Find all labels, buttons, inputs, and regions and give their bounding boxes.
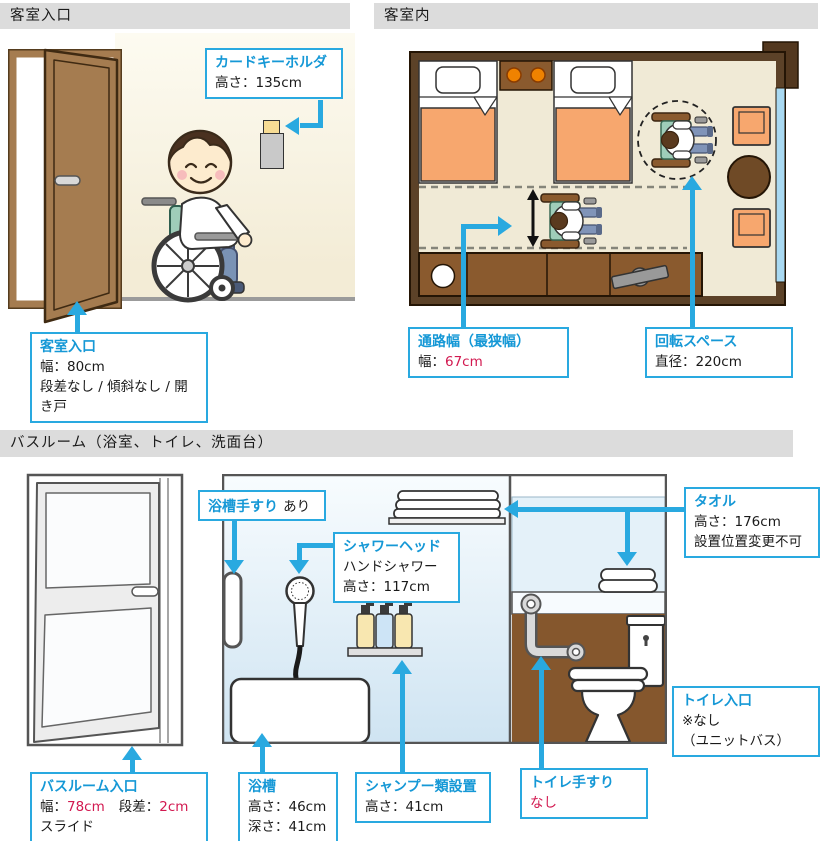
wheelchair-person-illustration <box>140 118 270 310</box>
card-key-height: 高さ：135cm <box>215 74 333 94</box>
bathroom-entrance-title: バスルーム入口 <box>40 777 198 798</box>
passage-value-line: 幅：67cm <box>418 353 559 373</box>
callout-toilet-entrance: トイレ入口 ※なし （ユニットバス） <box>672 686 820 757</box>
room-entrance-detail: 段差なし / 傾斜なし / 開き戸 <box>40 378 198 418</box>
toilet-entrance-note: （ユニットバス） <box>682 732 810 752</box>
room-entrance-width: 幅：80cm <box>40 358 198 378</box>
room-entrance-title: 客室入口 <box>40 337 198 358</box>
callout-bathroom-entrance: バスルーム入口 幅：78cm段差：2cm スライド <box>30 772 208 841</box>
shower-type: ハンドシャワー <box>343 558 450 578</box>
tub-depth: 深さ：41cm <box>248 818 328 838</box>
callout-card-key: カードキーホルダ 高さ：135cm <box>205 48 343 99</box>
card-key-title: カードキーホルダ <box>215 53 333 74</box>
towel-arrow2 <box>617 552 637 566</box>
passage-label: 幅： <box>418 354 445 370</box>
callout-tub: 浴槽 高さ：46cm 深さ：41cm <box>238 772 338 841</box>
toilet-grab-title: トイレ手すり <box>530 773 638 794</box>
bathroom-entrance-connector <box>130 760 135 772</box>
shampoo-title: シャンプー類設置 <box>365 777 481 798</box>
tub-grab-connector <box>232 520 237 561</box>
tub-title: 浴槽 <box>248 777 328 798</box>
bathroom-entrance-width-value: 78cm <box>67 799 105 815</box>
turning-arrow <box>682 176 702 190</box>
room-entrance-arrow <box>67 301 87 315</box>
tub-grab-title: 浴槽手すり <box>208 499 278 515</box>
bathroom-entrance-arrow <box>122 746 142 760</box>
toilet-entrance-title: トイレ入口 <box>682 691 810 712</box>
towel-connector2 <box>625 507 630 552</box>
callout-turning-space: 回転スペース 直径：220cm <box>645 327 793 378</box>
tub-height: 高さ：46cm <box>248 798 328 818</box>
passage-value: 67cm <box>445 354 483 370</box>
shower-title: シャワーヘッド <box>343 537 450 558</box>
callout-passage-width: 通路幅（最狭幅） 幅：67cm <box>408 327 569 378</box>
shampoo-arrow <box>392 660 412 674</box>
towel-title: タオル <box>694 492 810 513</box>
shower-connector2 <box>297 543 302 560</box>
callout-room-entrance: 客室入口 幅：80cm 段差なし / 傾斜なし / 開き戸 <box>30 332 208 423</box>
shower-arrow <box>289 560 309 574</box>
toilet-grab-status: なし <box>530 794 638 814</box>
section-header-entrance: 客室入口 <box>0 3 350 29</box>
room-entrance-connector <box>75 314 80 332</box>
passage-title: 通路幅（最狭幅） <box>418 332 559 353</box>
bathroom-entrance-step-value: 2cm <box>159 799 188 815</box>
bathroom-door-illustration <box>20 466 190 758</box>
accessibility-diagram: 客室入口 客室内 バスルーム（浴室、トイレ、洗面台） <box>0 0 822 841</box>
callout-toilet-grab-bar: トイレ手すり なし <box>520 768 648 819</box>
towel-connector <box>517 507 684 512</box>
passage-arrow <box>498 216 512 236</box>
bathroom-entrance-width-label: 幅： <box>40 799 67 815</box>
turning-diameter: 直径：220cm <box>655 353 783 373</box>
tub-connector <box>260 747 265 772</box>
bathroom-entrance-step-label: 段差： <box>119 799 160 815</box>
callout-shampoo: シャンプー類設置 高さ：41cm <box>355 772 491 823</box>
card-key-arrow <box>285 117 299 135</box>
towel-note: 設置位置変更不可 <box>694 533 810 553</box>
callout-tub-grab-bar: 浴槽手すり あり <box>198 490 326 521</box>
toilet-grab-connector <box>539 670 544 768</box>
tub-grab-status: あり <box>283 499 310 515</box>
towel-height: 高さ：176cm <box>694 513 810 533</box>
shampoo-connector <box>400 674 405 772</box>
shower-connector <box>302 543 333 548</box>
toilet-grab-arrow <box>531 656 551 670</box>
section-header-room: 客室内 <box>374 3 818 29</box>
callout-shower-head: シャワーヘッド ハンドシャワー 高さ：117cm <box>333 532 460 603</box>
tub-arrow <box>252 733 272 747</box>
turning-title: 回転スペース <box>655 332 783 353</box>
shampoo-height: 高さ：41cm <box>365 798 481 818</box>
shower-height: 高さ：117cm <box>343 578 450 598</box>
passage-connector2 <box>461 224 498 229</box>
section-header-bathroom: バスルーム（浴室、トイレ、洗面台） <box>0 430 793 457</box>
tub-grab-arrow <box>224 560 244 574</box>
passage-connector <box>461 224 466 327</box>
card-key-connector2 <box>300 123 322 128</box>
toilet-entrance-status: ※なし <box>682 712 810 732</box>
bathroom-entrance-type: スライド <box>40 818 198 838</box>
turning-connector <box>690 189 695 327</box>
towel-arrow <box>504 500 518 518</box>
entrance-door-illustration <box>5 45 127 330</box>
callout-towel: タオル 高さ：176cm 設置位置変更不可 <box>684 487 820 558</box>
bathroom-entrance-measure: 幅：78cm段差：2cm <box>40 798 198 818</box>
